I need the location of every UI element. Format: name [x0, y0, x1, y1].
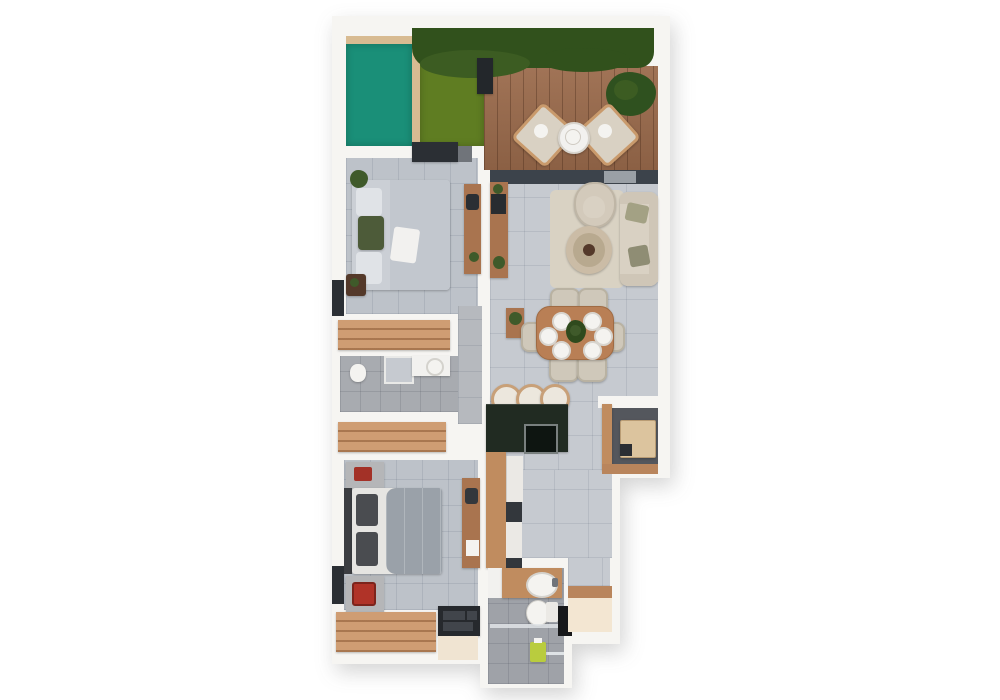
- armchair-seat: [583, 196, 605, 218]
- bedroom2-headboard: [344, 488, 352, 574]
- hallway-floor: [458, 306, 482, 424]
- bedroom1-desk-chair: [466, 194, 479, 210]
- console-plant-top: [493, 184, 503, 194]
- lounge-chair-left-cushion: [534, 124, 548, 138]
- terrace-side-table-ring: [565, 129, 581, 145]
- sofa-backrest: [649, 196, 658, 282]
- entry-floor: [568, 598, 612, 632]
- bathroom1-sink: [426, 358, 444, 376]
- bathroom1-shower: [384, 356, 414, 384]
- utility-wood-wall: [602, 404, 612, 470]
- bedroom2-duvet: [386, 488, 442, 574]
- bedroom2-desk-chair: [465, 488, 478, 504]
- entry-threshold: [568, 586, 612, 598]
- bathroom2-ledge: [488, 568, 502, 598]
- utility-wood-base: [602, 464, 658, 474]
- lounge-chair-right-cushion: [598, 124, 612, 138]
- shower-bottle: [530, 642, 546, 662]
- bedroom1-closet-lintel-end: [458, 146, 472, 162]
- floor-plan-canvas: [0, 0, 1000, 700]
- bedroom2-shoe-shelf-slot-1: [443, 611, 465, 620]
- shower-glass-divider: [490, 624, 564, 628]
- sofa-pillow-bottom: [627, 244, 650, 267]
- console-plant-bottom: [493, 256, 505, 269]
- kitchen-cabinet-end: [506, 558, 522, 568]
- bedroom1-pillow-top: [356, 188, 382, 216]
- bedroom1-wall-niche: [332, 280, 344, 316]
- coffee-table-decor: [583, 244, 595, 256]
- bedroom2-lamp-red: [352, 582, 376, 606]
- outdoor-lamp: [477, 58, 493, 94]
- toilet-tank: [546, 602, 558, 622]
- bedroom2-wardrobe-top: [338, 422, 446, 452]
- bedroom2-shoe-shelf-slot-2: [443, 622, 473, 631]
- bathroom2-faucet: [552, 578, 558, 587]
- corridor-floor: [520, 470, 612, 558]
- bedroom1-wardrobe: [338, 320, 450, 350]
- sliding-door-opening: [604, 171, 636, 183]
- bedroom2-vestibule-floor: [438, 636, 478, 660]
- bathroom1-toilet: [350, 364, 366, 382]
- dining-plate-6: [583, 341, 602, 360]
- bedroom2-pillow-top: [356, 494, 378, 526]
- bedroom1-side-table-plant: [350, 278, 359, 287]
- bedroom2-nightstand-top-decor: [354, 467, 372, 481]
- bedroom2-desk-paper: [466, 540, 479, 556]
- kitchen-fridge: [506, 456, 523, 502]
- bedroom1-closet-lintel: [412, 142, 458, 162]
- kitchen-oven: [506, 502, 522, 522]
- bedroom1-throw-blanket: [390, 226, 420, 263]
- pool: [346, 44, 412, 146]
- bedroom2-pillow-bottom: [356, 532, 378, 566]
- bedroom2-wardrobe-bottom: [336, 612, 436, 652]
- tv: [491, 194, 506, 214]
- kitchen-sink: [524, 424, 558, 454]
- bedroom1-desk-plant: [469, 252, 479, 262]
- bedroom2-wall-niche: [332, 566, 344, 604]
- entry-upper-floor: [568, 558, 610, 586]
- washer-panel: [620, 444, 632, 456]
- shower-bottle-cap: [534, 638, 542, 643]
- bedroom1-pillow-green: [358, 216, 384, 250]
- kitchen-cabinet-run: [486, 452, 506, 568]
- pool-rim-top: [346, 36, 418, 44]
- bedroom2-shoe-shelf-slot-3: [467, 611, 477, 620]
- dining-plate-5: [552, 341, 571, 360]
- kitchen-dishwasher: [506, 522, 522, 558]
